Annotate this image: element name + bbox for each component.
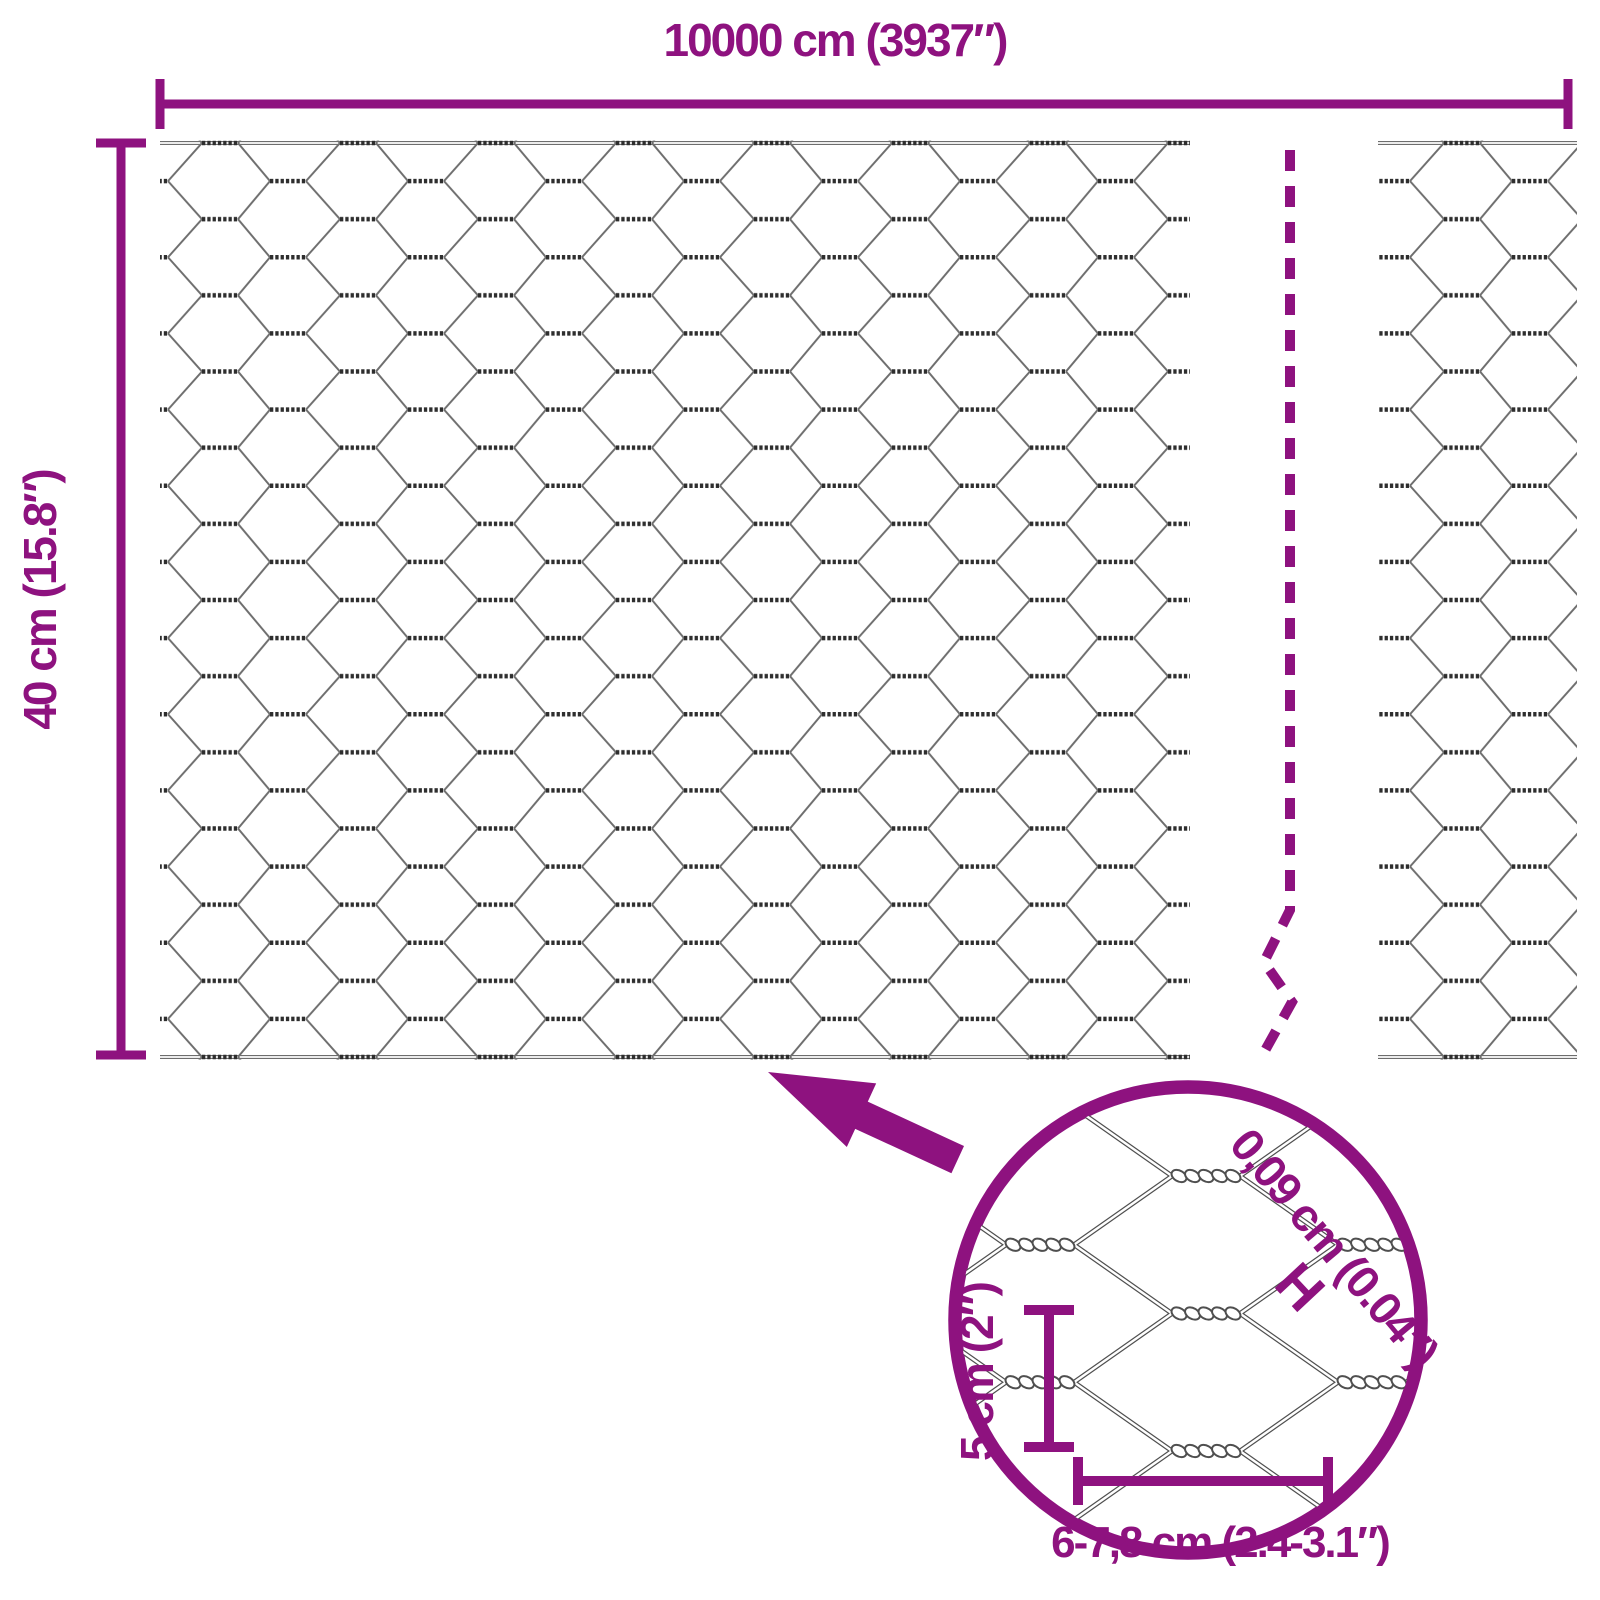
width-dimension: 10000 cm (3937″) bbox=[160, 14, 1568, 129]
height-dimension: 40 cm (15.8″) bbox=[14, 143, 146, 1055]
product-dimension-diagram: 10000 cm (3937″) 40 cm (15.8″) 5 cm (2″)… bbox=[0, 0, 1600, 1600]
mesh-width-label: 6-7,8 cm (2.4-3.1″) bbox=[1051, 1518, 1389, 1567]
magnifier-arrow-icon bbox=[753, 1040, 972, 1191]
mesh-panel-continuation bbox=[1378, 141, 1577, 1060]
mesh-panel-main bbox=[160, 141, 1190, 1060]
height-dimension-label: 40 cm (15.8″) bbox=[14, 470, 66, 730]
break-line bbox=[1262, 150, 1292, 1056]
diagram-canvas: 10000 cm (3937″) 40 cm (15.8″) 5 cm (2″)… bbox=[0, 0, 1600, 1600]
hex-mesh-continuation bbox=[1378, 141, 1577, 1060]
hex-mesh-main bbox=[160, 141, 1190, 1060]
mesh-height-label: 5 cm (2″) bbox=[951, 1282, 1003, 1461]
width-dimension-label: 10000 cm (3937″) bbox=[664, 14, 1008, 66]
magnifier-inset: 5 cm (2″) 6-7,8 cm (2.4-3.1″) 0,09 cm (0… bbox=[950, 1082, 1449, 1567]
